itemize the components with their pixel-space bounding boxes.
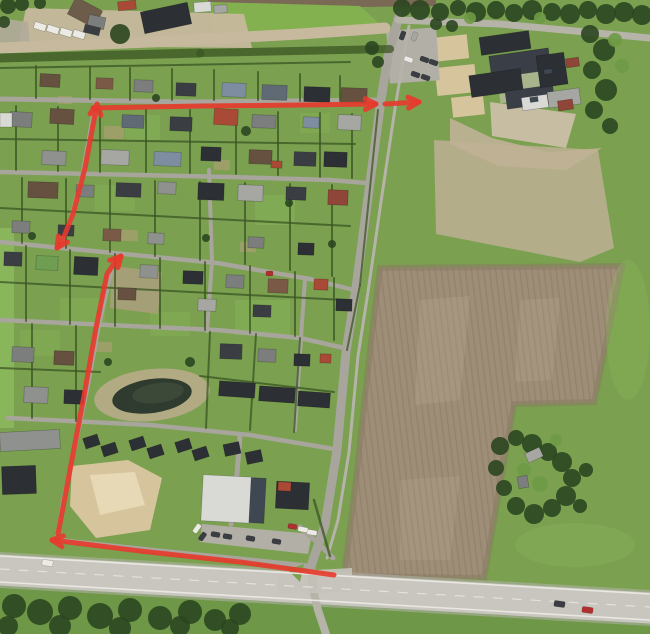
tree [596, 4, 616, 24]
building [201, 147, 221, 162]
vehicle [266, 271, 273, 276]
building [338, 115, 362, 131]
building [42, 151, 66, 166]
building [118, 0, 137, 11]
building [54, 351, 74, 366]
building [214, 108, 239, 125]
field-streak [400, 476, 460, 560]
vehicle [42, 559, 54, 566]
tree [614, 2, 634, 22]
building [103, 229, 121, 242]
tree [550, 434, 562, 446]
soil-patch [120, 230, 138, 242]
building [140, 265, 158, 279]
building [249, 150, 272, 165]
building [314, 279, 328, 290]
tree [573, 499, 587, 513]
tree [579, 1, 597, 19]
hedge [200, 49, 390, 53]
tree [285, 199, 293, 207]
building [238, 185, 264, 202]
tree [581, 25, 599, 43]
building [328, 190, 349, 206]
building [183, 271, 203, 285]
building [298, 391, 331, 408]
building [0, 429, 60, 451]
building [0, 113, 12, 127]
building [258, 349, 276, 363]
tree [487, 1, 505, 19]
building [530, 96, 539, 102]
building [341, 88, 368, 104]
vehicle [554, 600, 566, 607]
tree [524, 504, 544, 524]
building [194, 1, 212, 12]
building [253, 305, 271, 318]
building [303, 117, 319, 129]
aerial-map[interactable] [0, 0, 650, 634]
building [294, 152, 316, 167]
building [154, 152, 181, 167]
tree [488, 460, 504, 476]
building [74, 256, 99, 275]
building [122, 115, 144, 129]
tree [450, 0, 466, 16]
building [565, 57, 579, 68]
tree [372, 56, 384, 68]
tree [410, 0, 430, 20]
tree [608, 33, 622, 47]
building [278, 482, 291, 492]
tree [615, 59, 629, 73]
building [544, 68, 553, 74]
tree [534, 12, 546, 24]
tree [595, 79, 617, 101]
building [2, 465, 37, 494]
building [271, 161, 282, 168]
building [222, 83, 246, 98]
building [40, 73, 61, 87]
building [320, 354, 331, 363]
playground-sand [451, 94, 485, 117]
building [176, 83, 196, 97]
building [219, 381, 256, 398]
tree [152, 94, 160, 102]
building [220, 344, 243, 360]
hedge [0, 53, 200, 58]
tree [431, 3, 449, 21]
tree [87, 603, 113, 629]
tree [532, 476, 548, 492]
tree [583, 61, 601, 79]
building [28, 181, 59, 198]
building [201, 475, 255, 524]
tree [563, 469, 581, 487]
building [12, 347, 35, 363]
building [36, 256, 58, 271]
building [134, 80, 153, 93]
building [226, 275, 244, 289]
building [4, 252, 22, 267]
tree [579, 463, 593, 477]
building [116, 183, 141, 198]
building [12, 221, 30, 234]
tree [585, 101, 603, 119]
building [268, 279, 288, 294]
building [262, 85, 288, 101]
tree [491, 437, 509, 455]
tree [508, 430, 524, 446]
vehicle [582, 606, 594, 613]
building [148, 233, 164, 245]
tree [560, 4, 580, 24]
tree [496, 480, 512, 496]
tree [552, 452, 572, 472]
building [50, 108, 75, 124]
building [557, 99, 573, 111]
building [24, 387, 49, 404]
building [96, 78, 113, 90]
tree [543, 499, 561, 517]
building [286, 187, 306, 201]
building [248, 237, 264, 249]
tree [365, 41, 379, 55]
screenshot-root [0, 0, 650, 634]
tree [430, 18, 442, 30]
building [249, 478, 266, 524]
building [298, 243, 314, 256]
building [198, 183, 225, 201]
tree [241, 126, 251, 136]
tree [328, 240, 336, 248]
tree [27, 599, 53, 625]
building [252, 115, 276, 129]
building [304, 87, 331, 103]
building [101, 150, 130, 166]
building [324, 152, 348, 168]
tree [104, 358, 112, 366]
tree [148, 606, 172, 630]
tree [517, 463, 531, 477]
building [336, 299, 352, 312]
tree [507, 497, 525, 515]
soil-patch [104, 125, 125, 139]
building [170, 117, 192, 132]
tree [602, 118, 618, 134]
building [158, 182, 176, 195]
tree [446, 20, 458, 32]
building [198, 299, 216, 312]
lawn [150, 312, 190, 336]
tree [464, 12, 476, 24]
building [259, 386, 296, 403]
building [517, 475, 529, 489]
tree [505, 4, 523, 22]
pasture-mottle [515, 523, 635, 567]
building [10, 111, 33, 127]
tree [2, 594, 26, 618]
playground-sand [433, 34, 469, 61]
soil-patch [96, 342, 112, 353]
tree [110, 24, 130, 44]
tree [202, 234, 210, 242]
building [118, 288, 136, 301]
tree [185, 357, 195, 367]
pasture-mottle [606, 260, 650, 400]
building [294, 354, 310, 367]
building [214, 5, 228, 14]
